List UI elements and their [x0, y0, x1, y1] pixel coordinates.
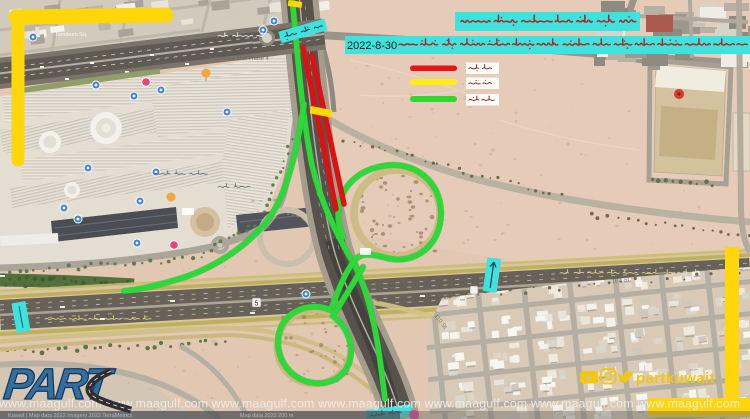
svg-text:partkuwait: partkuwait: [636, 370, 715, 387]
svg-text:2022-8-30: 2022-8-30: [347, 40, 397, 52]
svg-text:Map data 2022 200 m: Map data 2022 200 m: [240, 413, 294, 419]
svg-text:Avenues Mall Phase 4: Avenues Mall Phase 4: [214, 56, 269, 62]
svg-text:Tamdeen Sq.: Tamdeen Sq.: [55, 32, 88, 38]
svg-text:Kuwait | Map data 2022 Imag: Kuwait | Map data 2022 Imagery 2022 Terr…: [8, 413, 133, 419]
svg-text:5: 5: [255, 300, 259, 307]
